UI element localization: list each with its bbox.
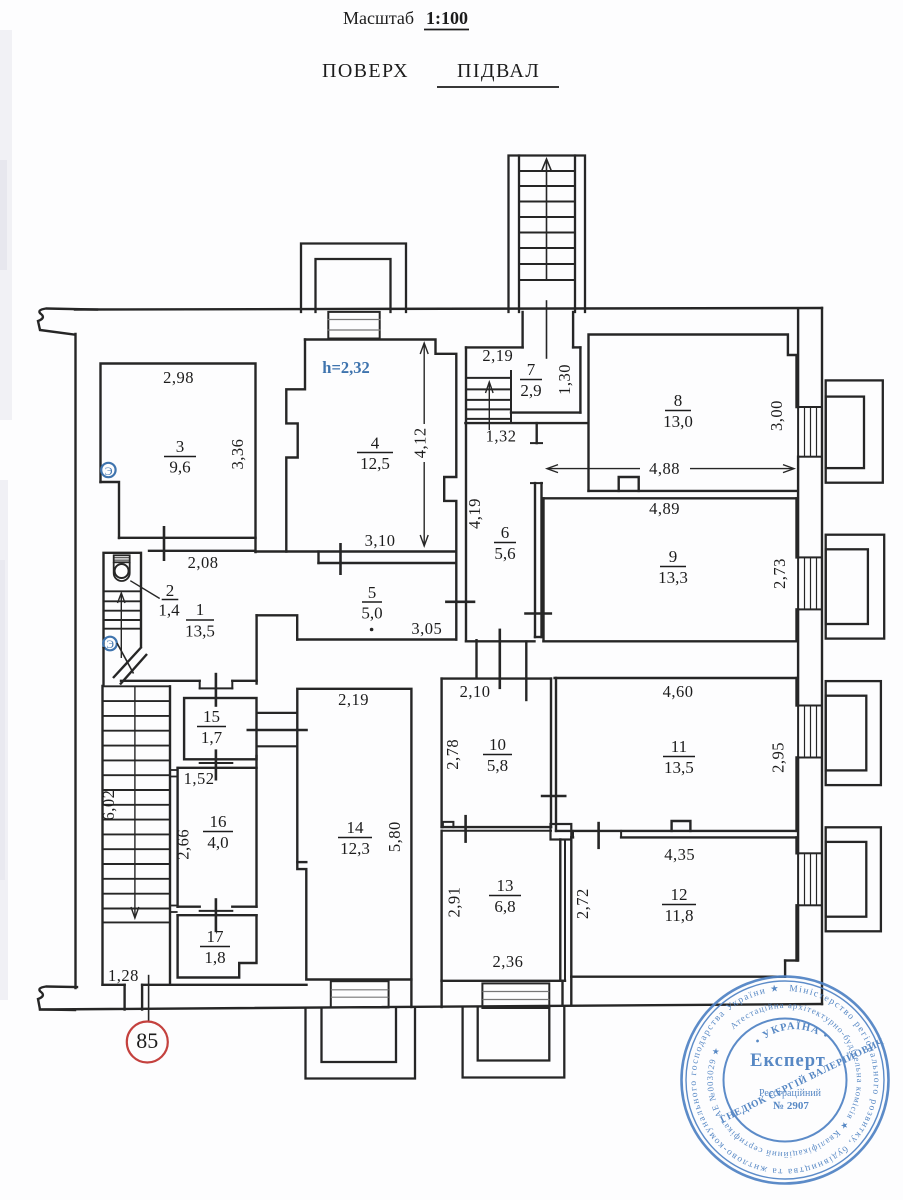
svg-text:1,4: 1,4 (158, 601, 180, 620)
svg-text:1,52: 1,52 (184, 769, 215, 788)
svg-text:13,5: 13,5 (185, 622, 215, 641)
svg-text:13: 13 (497, 876, 514, 895)
svg-text:7: 7 (527, 360, 536, 379)
svg-text:4,60: 4,60 (663, 682, 694, 701)
svg-text:6,8: 6,8 (494, 897, 515, 916)
svg-text:2,08: 2,08 (188, 553, 219, 572)
svg-text:2,19: 2,19 (482, 346, 513, 365)
svg-text:13,0: 13,0 (663, 412, 693, 431)
svg-text:5,6: 5,6 (494, 544, 515, 563)
svg-text:14: 14 (347, 818, 365, 837)
svg-text:5,0: 5,0 (361, 604, 382, 623)
svg-text:№ 2907: № 2907 (773, 1100, 809, 1112)
svg-text:h=2,32: h=2,32 (322, 358, 369, 377)
svg-text:13,3: 13,3 (658, 568, 688, 587)
svg-text:3,00: 3,00 (767, 400, 786, 431)
svg-text:6,02: 6,02 (99, 790, 118, 821)
svg-text:12: 12 (671, 885, 688, 904)
svg-text:2,98: 2,98 (163, 368, 194, 387)
svg-text:6: 6 (501, 523, 510, 542)
svg-text:10: 10 (489, 735, 506, 754)
svg-text:11: 11 (671, 737, 687, 756)
svg-text:4,89: 4,89 (649, 499, 680, 518)
svg-text:4: 4 (371, 434, 380, 453)
svg-text:3: 3 (176, 437, 185, 456)
svg-text:17: 17 (207, 927, 225, 946)
svg-text:2,95: 2,95 (769, 742, 788, 773)
svg-text:1,7: 1,7 (201, 728, 223, 747)
svg-text:2,10: 2,10 (460, 682, 491, 701)
svg-text:4,19: 4,19 (465, 498, 484, 529)
svg-text:4,35: 4,35 (664, 845, 695, 864)
svg-text:2,66: 2,66 (173, 829, 192, 860)
svg-text:1,30: 1,30 (555, 364, 574, 395)
svg-text:1:100: 1:100 (426, 8, 468, 28)
svg-text:Э: Э (106, 639, 114, 651)
svg-text:9: 9 (669, 547, 678, 566)
svg-text:15: 15 (203, 707, 220, 726)
svg-text:5,80: 5,80 (385, 821, 404, 852)
svg-text:11,8: 11,8 (664, 906, 693, 925)
svg-text:1,28: 1,28 (108, 966, 139, 985)
svg-text:Масштаб: Масштаб (343, 8, 414, 28)
svg-text:3,10: 3,10 (365, 531, 396, 550)
svg-text:1,32: 1,32 (486, 427, 517, 446)
svg-text:9,6: 9,6 (169, 458, 190, 477)
svg-text:2: 2 (166, 581, 175, 600)
svg-text:2,91: 2,91 (445, 887, 464, 918)
svg-text:12,3: 12,3 (340, 839, 370, 858)
svg-text:2,73: 2,73 (770, 558, 789, 589)
svg-text:2,9: 2,9 (520, 381, 541, 400)
svg-text:2,78: 2,78 (443, 739, 462, 770)
svg-text:8: 8 (674, 391, 683, 410)
svg-text:16: 16 (210, 812, 227, 831)
svg-text:4,88: 4,88 (649, 459, 680, 478)
svg-text:Э: Э (105, 464, 113, 478)
svg-text:12,5: 12,5 (360, 454, 390, 473)
svg-text:2,36: 2,36 (492, 952, 523, 971)
svg-text:2,72: 2,72 (573, 888, 592, 919)
svg-text:5,8: 5,8 (487, 756, 508, 775)
svg-text:4,12: 4,12 (411, 427, 430, 458)
svg-text:3,05: 3,05 (411, 619, 442, 638)
svg-text:1: 1 (196, 600, 205, 619)
svg-text:3,36: 3,36 (228, 439, 247, 470)
svg-text:1,8: 1,8 (204, 948, 225, 967)
svg-text:ПОВЕРХ: ПОВЕРХ (322, 60, 409, 82)
svg-text:ПІДВАЛ: ПІДВАЛ (457, 60, 540, 82)
svg-text:5: 5 (368, 583, 377, 602)
svg-text:85: 85 (136, 1028, 158, 1053)
svg-text:2,19: 2,19 (338, 690, 369, 709)
svg-text:13,5: 13,5 (664, 758, 694, 777)
svg-text:4,0: 4,0 (207, 833, 228, 852)
